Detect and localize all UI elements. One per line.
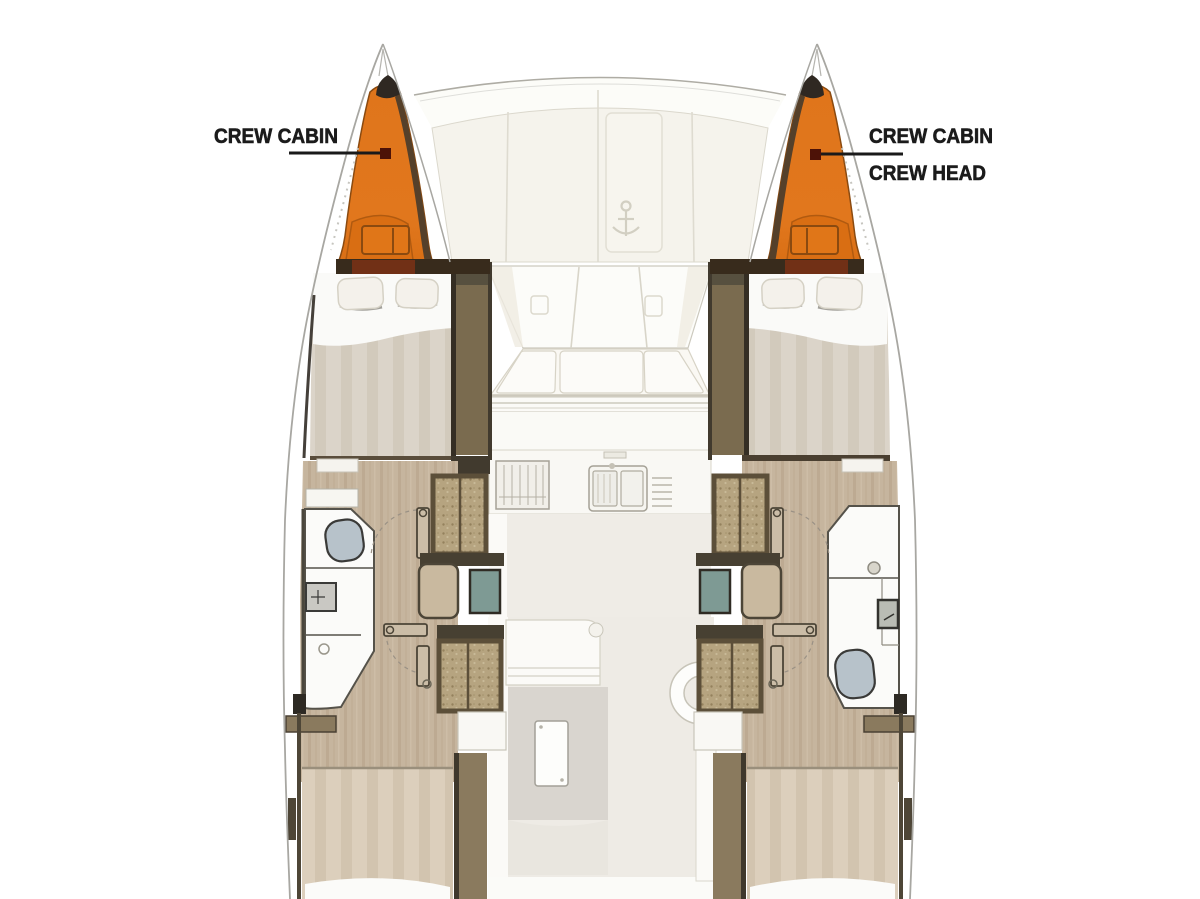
svg-text:CREW CABIN: CREW CABIN — [869, 125, 993, 148]
svg-text:CREW HEAD: CREW HEAD — [869, 162, 986, 185]
svg-text:CREW CABIN: CREW CABIN — [214, 125, 338, 148]
